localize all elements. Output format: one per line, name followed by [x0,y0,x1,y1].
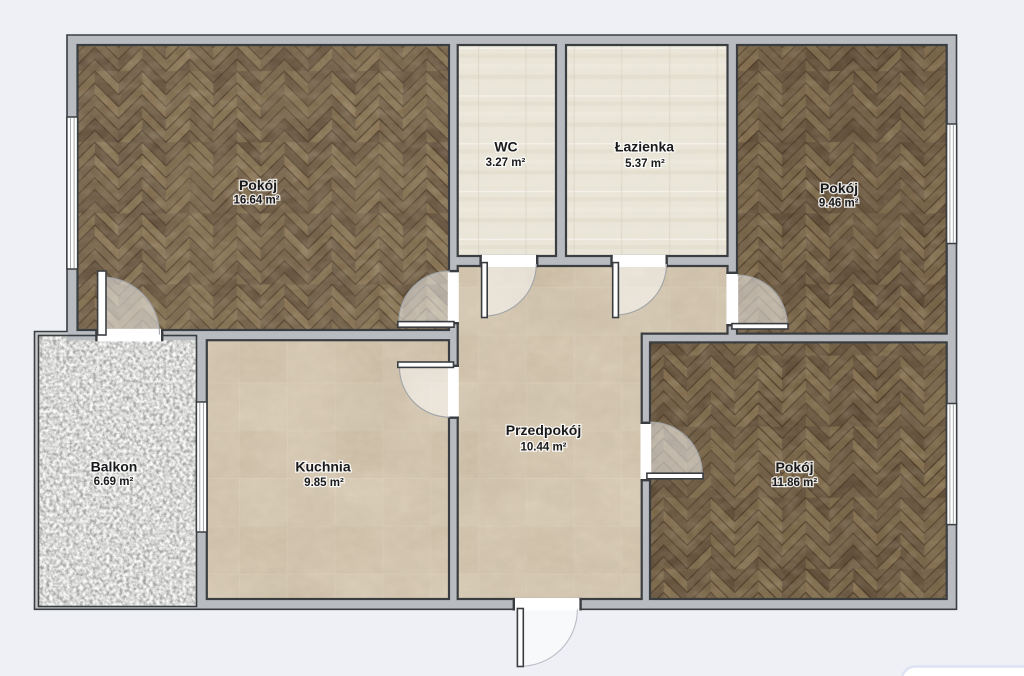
svg-text:9.85 m²: 9.85 m² [304,477,344,489]
svg-text:3.27 m²: 3.27 m² [486,157,526,169]
svg-text:10.44 m²: 10.44 m² [520,442,566,454]
svg-text:Łazienka: Łazienka [615,139,674,155]
svg-text:9.46 m²: 9.46 m² [819,198,859,210]
svg-text:5.37 m²: 5.37 m² [625,158,665,170]
svg-text:WC: WC [494,139,517,155]
svg-text:Pokój: Pokój [239,177,277,193]
svg-text:16.64 m²: 16.64 m² [233,195,279,207]
svg-text:Kuchnia: Kuchnia [295,459,350,475]
svg-text:6.69 m²: 6.69 m² [94,476,134,488]
svg-text:Balkon: Balkon [91,459,138,475]
svg-text:11.86 m²: 11.86 m² [772,477,818,489]
svg-text:Przedpokój: Przedpokój [506,422,581,438]
svg-text:Pokój: Pokój [820,180,858,196]
svg-text:Pokój: Pokój [775,459,813,475]
